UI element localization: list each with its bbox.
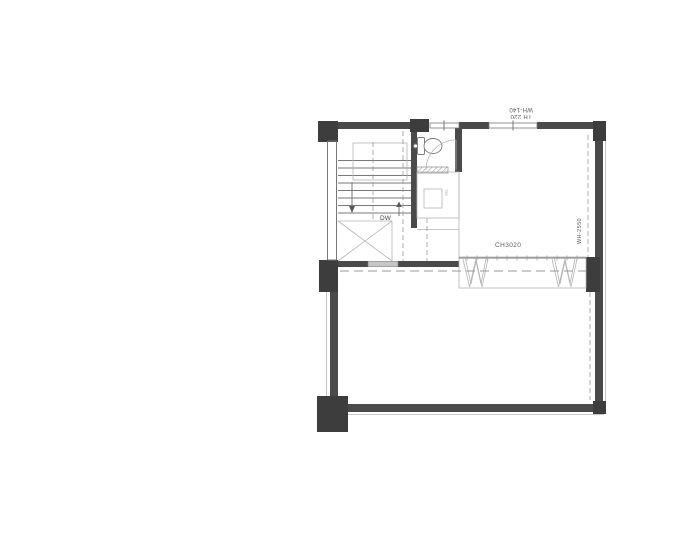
stair-arrow-up xyxy=(396,202,402,217)
top-wall-right xyxy=(537,122,598,129)
floor-plan-page: TH 220 WH-140 DW CH3020 WH-2550 750 xyxy=(0,0,700,560)
void-x-box xyxy=(338,221,392,261)
window-spec-line1: TH 220 xyxy=(482,112,560,119)
left-wall-lower xyxy=(330,290,338,398)
pillar-bottom-right xyxy=(593,401,606,414)
folding-door-symbol-left xyxy=(463,259,488,287)
right-window-label: WH-2550 xyxy=(577,218,583,244)
top-wall-mid xyxy=(459,122,489,129)
mid-wall-glazing xyxy=(368,262,398,267)
floor-plan-drawing xyxy=(0,0,700,560)
stair-dw-label: DW xyxy=(380,215,391,222)
stairs-group xyxy=(338,143,411,261)
fixture-dimension-label: 750 xyxy=(444,189,449,196)
bathroom-left-wall xyxy=(411,128,417,228)
pillar-top-right xyxy=(593,121,606,141)
sink-outline xyxy=(424,189,442,208)
pillar-top-left xyxy=(318,121,338,142)
mid-wall-center xyxy=(398,261,459,267)
mid-wall-left xyxy=(338,261,368,267)
stair-upper-flight-outline xyxy=(353,143,407,180)
bottom-wall xyxy=(348,404,598,412)
pillar-mid-left xyxy=(319,260,338,292)
pillar-bottom-left xyxy=(317,396,348,432)
kitchen-group xyxy=(417,172,459,261)
counter-outline xyxy=(417,172,459,218)
window-spec-line2: WH-140 xyxy=(482,105,560,112)
top-wall-left xyxy=(336,122,412,129)
bathroom-group xyxy=(414,138,457,174)
window-spec-label: TH 220 WH-140 xyxy=(482,105,560,119)
folding-door-symbol-right xyxy=(552,259,577,287)
pillar-top-mid xyxy=(410,119,429,132)
pillar-mid-right xyxy=(586,257,600,292)
folding-door-opening xyxy=(459,256,586,289)
room-ceiling-label: CH3020 xyxy=(495,242,521,249)
